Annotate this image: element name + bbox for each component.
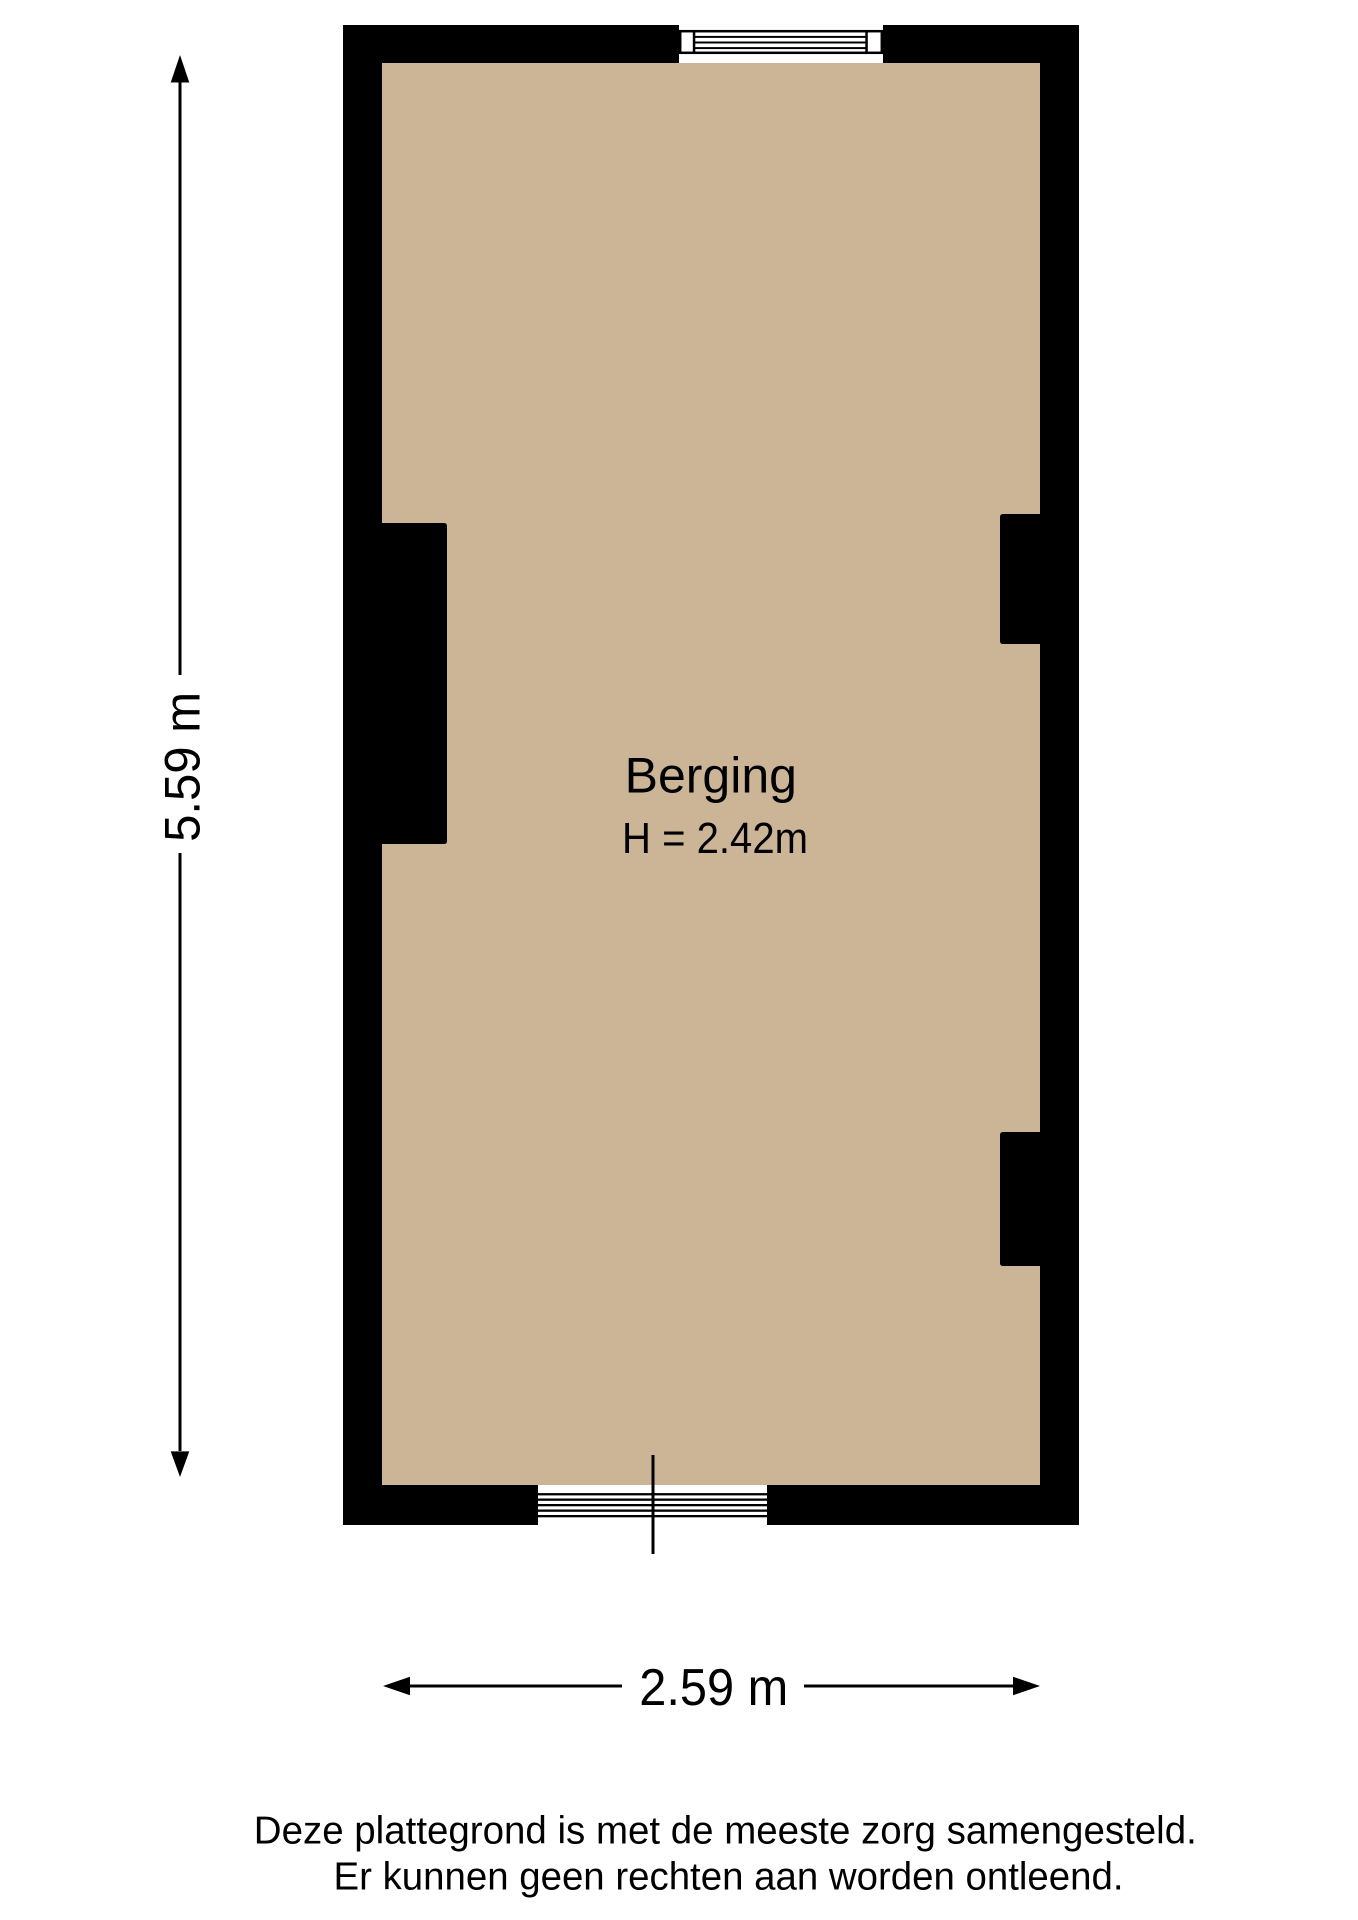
svg-text:5.59 m: 5.59 m — [155, 692, 211, 842]
svg-text:2.59 m: 2.59 m — [639, 1659, 788, 1717]
svg-text:Berging: Berging — [625, 747, 797, 803]
svg-text:Deze plattegrond is met de mee: Deze plattegrond is met de meeste zorg s… — [254, 1809, 1197, 1852]
svg-text:H = 2.42m: H = 2.42m — [622, 814, 808, 863]
svg-text:Er kunnen geen rechten aan wor: Er kunnen geen rechten aan worden ontlee… — [334, 1855, 1124, 1898]
